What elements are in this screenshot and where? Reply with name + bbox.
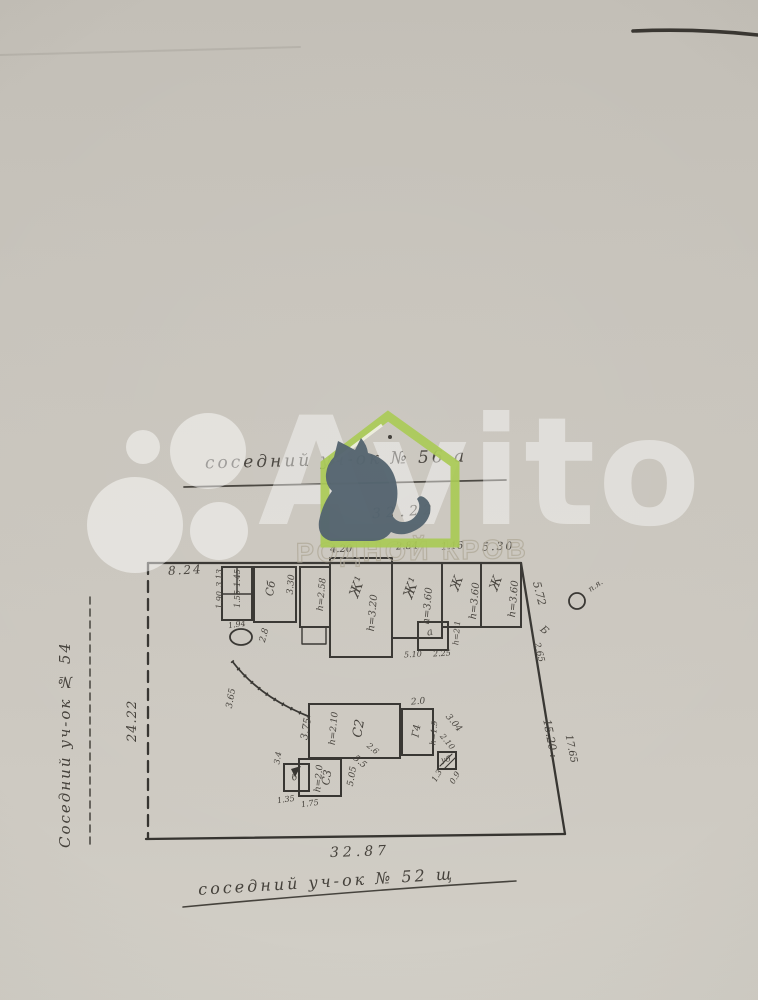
house-cat-logo-svg: [0, 0, 758, 1000]
cat-silhouette-icon: [319, 438, 431, 541]
scanned-plan-photo: соседний уч-ок № 56 а 32.22 8.24 4.20 2.…: [0, 0, 758, 1000]
